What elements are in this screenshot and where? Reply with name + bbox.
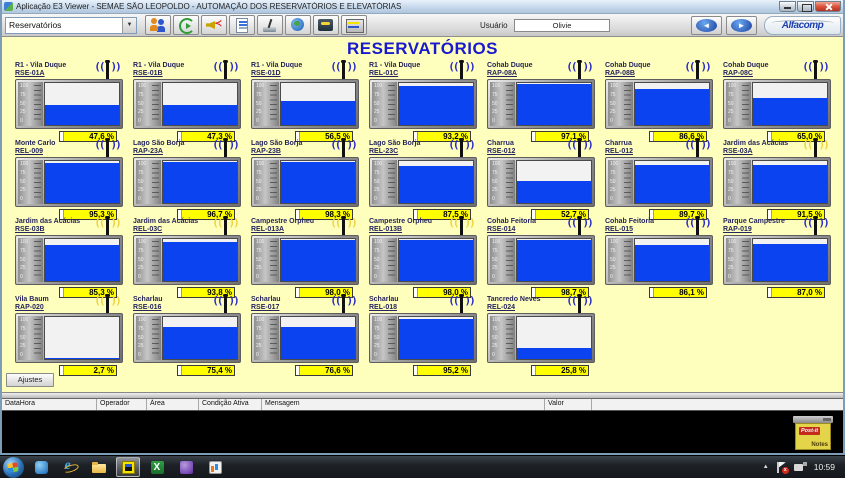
reservoir-widget[interactable]: Lago São Borja REL-23C (( )) 1007550250 … bbox=[369, 140, 479, 218]
antenna-icon: (( )) bbox=[91, 217, 123, 231]
antenna-wave-left: (( bbox=[94, 61, 103, 72]
reservoir-code[interactable]: RAP-08A bbox=[487, 70, 542, 78]
windows-flag-icon bbox=[7, 462, 18, 472]
title-bar: Aplicação E3 Viewer - SEMAE SÃO LEOPOLDO… bbox=[2, 0, 843, 14]
tank-fill bbox=[635, 165, 709, 203]
chevron-down-icon[interactable]: ▼ bbox=[122, 18, 136, 33]
scale-label: 100 bbox=[256, 162, 279, 167]
antenna-wave-right: )) bbox=[819, 217, 828, 228]
scale-label: 0 bbox=[492, 119, 515, 124]
level-gauge: 1007550250 bbox=[251, 157, 359, 207]
antenna-wave-left: (( bbox=[684, 61, 693, 72]
level-gauge: 1007550250 bbox=[251, 313, 359, 363]
reservoir-code[interactable]: RAP-019 bbox=[723, 226, 778, 234]
scale-label: 75 bbox=[610, 93, 633, 98]
taskbar-clock[interactable]: 10:59 bbox=[814, 462, 835, 472]
level-gauge: 1007550250 bbox=[15, 235, 123, 285]
reservoir-code[interactable]: REL-013A bbox=[251, 226, 306, 234]
gauge-scale: 1007550250 bbox=[18, 82, 43, 126]
antenna-icon: (( )) bbox=[327, 61, 359, 75]
reservoir-widget[interactable]: Lago São Borja RAP-23B (( )) 1007550250 … bbox=[251, 140, 361, 218]
scale-label: 75 bbox=[492, 327, 515, 332]
alarm-table-header: DataHoraOperadorÁreaCondição AtivaMensag… bbox=[2, 399, 843, 411]
world-button[interactable] bbox=[285, 15, 311, 35]
reservoir-widget[interactable]: Monte Carlo REL-009 (( )) 1007550250 95,… bbox=[15, 140, 125, 218]
reservoir-widget[interactable]: Cohab Feitoria REL-015 (( )) 1007550250 … bbox=[605, 218, 715, 296]
level-gauge: 1007550250 bbox=[723, 157, 831, 207]
antenna-wave-right: )) bbox=[583, 61, 592, 72]
ajustes-button[interactable]: Ajustes bbox=[6, 373, 54, 387]
back-button[interactable]: ◄ bbox=[691, 16, 722, 35]
close-button[interactable] bbox=[815, 1, 841, 12]
messenger-icon bbox=[34, 460, 49, 475]
level-panel-icon bbox=[346, 18, 362, 32]
antenna-wave-left: (( bbox=[802, 217, 811, 228]
reservoir-widget[interactable]: Lago São Borja RAP-23A (( )) 1007550250 … bbox=[133, 140, 243, 218]
antenna-wave-left: (( bbox=[448, 139, 457, 150]
antenna-wave-right: )) bbox=[465, 61, 474, 72]
phone-panel-icon bbox=[318, 18, 334, 32]
refresh-button[interactable] bbox=[173, 15, 199, 35]
scale-label: 50 bbox=[20, 336, 43, 341]
reservoir-code[interactable]: REL-024 bbox=[487, 304, 542, 312]
page-title: RESERVATÓRIOS bbox=[2, 37, 843, 59]
scale-label: 75 bbox=[20, 93, 43, 98]
level-gauge: 1007550250 bbox=[723, 235, 831, 285]
tank-fill bbox=[281, 327, 355, 359]
tank-fill bbox=[517, 84, 591, 125]
scale-label: 50 bbox=[610, 258, 633, 263]
reservoir-code[interactable]: RSE-014 bbox=[487, 226, 542, 234]
reservoir-widget[interactable]: Scharlau REL-018 (( )) 1007550250 95,2 % bbox=[369, 296, 479, 374]
scale-label: 25 bbox=[20, 188, 43, 193]
gauge-scale: 1007550250 bbox=[490, 316, 515, 360]
scale-label: 75 bbox=[492, 249, 515, 254]
scale-label: 50 bbox=[610, 102, 633, 107]
tank-fill bbox=[281, 240, 355, 281]
scale-label: 50 bbox=[138, 336, 161, 341]
reservoir-widget[interactable]: Charrua RSE-012 (( )) 1007550250 52,7 % bbox=[487, 140, 597, 218]
reservoir-value: 95,2 % bbox=[418, 366, 470, 375]
reservoir-code[interactable]: RSE-01B bbox=[133, 70, 188, 78]
level-gauge: 1007550250 bbox=[15, 79, 123, 129]
reservoir-code[interactable]: REL-23C bbox=[369, 148, 424, 156]
internet-explorer-icon bbox=[63, 460, 78, 475]
reservoir-widget[interactable]: Cohab Feitoria RSE-014 (( )) 1007550250 … bbox=[487, 218, 597, 296]
alarm-column-mensagem: Mensagem bbox=[262, 399, 545, 410]
action-center-flag-icon[interactable]: x bbox=[776, 462, 787, 473]
antenna-wave-left: (( bbox=[448, 61, 457, 72]
scale-label: 0 bbox=[492, 353, 515, 358]
taskbar-app-explorer[interactable] bbox=[87, 457, 111, 477]
reservoir-code[interactable]: RSE-012 bbox=[487, 148, 542, 156]
antenna-wave-right: )) bbox=[229, 217, 238, 228]
reservoir-code[interactable]: RSE-017 bbox=[251, 304, 306, 312]
screen-selector-value: Reservatórios bbox=[6, 20, 122, 30]
folder-icon bbox=[92, 460, 107, 475]
taskbar-app-media[interactable] bbox=[174, 457, 198, 477]
tank bbox=[162, 160, 238, 204]
reservoir-code[interactable]: RSE-03B bbox=[15, 226, 70, 234]
reservoir-code[interactable]: RAP-08C bbox=[723, 70, 778, 78]
antenna-wave-right: )) bbox=[111, 217, 120, 228]
taskbar-app-e3-viewer[interactable] bbox=[116, 457, 140, 477]
postit-dispenser-top bbox=[793, 416, 833, 423]
gauge-scale: 1007550250 bbox=[372, 316, 397, 360]
reservoir-code[interactable]: REL-03C bbox=[133, 226, 188, 234]
reservoir-widget[interactable]: Campestre Orpheu REL-013A (( )) 10075502… bbox=[251, 218, 361, 296]
tank bbox=[516, 316, 592, 360]
gauge-scale: 1007550250 bbox=[372, 160, 397, 204]
scale-label: 100 bbox=[138, 162, 161, 167]
antenna-icon: (( )) bbox=[209, 139, 241, 153]
scale-label: 0 bbox=[374, 119, 397, 124]
tank bbox=[44, 316, 120, 360]
gauge-scale: 1007550250 bbox=[608, 160, 633, 204]
scale-label: 50 bbox=[256, 102, 279, 107]
gauge-scale: 1007550250 bbox=[136, 160, 161, 204]
system-tray: ▲ x 10:59 bbox=[763, 462, 845, 473]
scale-label: 50 bbox=[138, 102, 161, 107]
reservoir-widget[interactable]: Scharlau RSE-017 (( )) 1007550250 76,6 % bbox=[251, 296, 361, 374]
scale-label: 100 bbox=[374, 240, 397, 245]
tank-fill bbox=[45, 163, 119, 203]
start-button[interactable] bbox=[3, 457, 24, 478]
reservoir-widget[interactable]: R1 - Vila Duque RSE-01A (( )) 1007550250… bbox=[15, 62, 125, 140]
reservoir-code[interactable]: RSE-016 bbox=[133, 304, 188, 312]
reservoir-widget[interactable]: Jardim das Acácias RSE-03A (( )) 1007550… bbox=[723, 140, 833, 218]
scale-label: 25 bbox=[20, 266, 43, 271]
antenna-wave-right: )) bbox=[229, 61, 238, 72]
antenna-wave-right: )) bbox=[111, 61, 120, 72]
scale-label: 100 bbox=[256, 240, 279, 245]
tank-fill bbox=[753, 98, 827, 125]
antenna-icon: (( )) bbox=[799, 139, 831, 153]
postit-logo-text: Post-it bbox=[799, 427, 820, 435]
scale-label: 0 bbox=[138, 197, 161, 202]
tank bbox=[398, 160, 474, 204]
scale-label: 0 bbox=[20, 275, 43, 280]
scale-label: 100 bbox=[20, 84, 43, 89]
antenna-icon: (( )) bbox=[563, 217, 595, 231]
tank bbox=[634, 160, 710, 204]
level-value-box: 86,1 % bbox=[649, 287, 707, 298]
minimize-button[interactable] bbox=[779, 1, 796, 12]
scale-label: 25 bbox=[610, 188, 633, 193]
splitter-bar[interactable] bbox=[2, 392, 843, 399]
maximize-button[interactable] bbox=[797, 1, 814, 12]
reservoir-code[interactable]: RAP-23B bbox=[251, 148, 306, 156]
antenna-icon: (( )) bbox=[681, 139, 713, 153]
level-gauge: 1007550250 bbox=[15, 157, 123, 207]
gauge-scale: 1007550250 bbox=[372, 238, 397, 282]
scale-label: 100 bbox=[138, 318, 161, 323]
reservoir-widget[interactable]: R1 - Vila Duque REL-01C (( )) 1007550250… bbox=[369, 62, 479, 140]
level-gauge: 1007550250 bbox=[133, 157, 241, 207]
reservoir-widget[interactable]: R1 - Vila Duque RSE-01B (( )) 1007550250… bbox=[133, 62, 243, 140]
antenna-wave-left: (( bbox=[330, 295, 339, 306]
gauge-scale: 1007550250 bbox=[18, 316, 43, 360]
tank bbox=[162, 82, 238, 126]
level-gauge: 1007550250 bbox=[251, 79, 359, 129]
reservoir-widget[interactable]: Jardim das Acácias REL-03C (( )) 1007550… bbox=[133, 218, 243, 296]
reservoir-code[interactable]: RSE-03A bbox=[723, 148, 778, 156]
antenna-icon: (( )) bbox=[327, 295, 359, 309]
scale-label: 0 bbox=[138, 353, 161, 358]
scale-label: 75 bbox=[728, 249, 751, 254]
scale-label: 100 bbox=[374, 318, 397, 323]
alarm-column--rea: Área bbox=[147, 399, 199, 410]
scale-label: 0 bbox=[492, 197, 515, 202]
tank bbox=[398, 238, 474, 282]
tank bbox=[162, 238, 238, 282]
world-icon bbox=[290, 18, 306, 32]
level-gauge: 1007550250 bbox=[605, 79, 713, 129]
level-value-box: 2,7 % bbox=[59, 365, 117, 376]
reservoir-code[interactable]: REL-009 bbox=[15, 148, 70, 156]
antenna-icon: (( )) bbox=[445, 295, 477, 309]
reservoir-code[interactable]: REL-013B bbox=[369, 226, 424, 234]
reservoir-code[interactable]: RSE-01D bbox=[251, 70, 306, 78]
app-icon-purple bbox=[179, 460, 194, 475]
scale-label: 75 bbox=[374, 327, 397, 332]
antenna-wave-right: )) bbox=[583, 217, 592, 228]
antenna-wave-left: (( bbox=[94, 295, 103, 306]
antenna-wave-left: (( bbox=[566, 61, 575, 72]
forward-button[interactable]: ► bbox=[726, 16, 757, 35]
antenna-wave-right: )) bbox=[819, 61, 828, 72]
scale-label: 75 bbox=[492, 93, 515, 98]
gauge-scale: 1007550250 bbox=[726, 82, 751, 126]
scale-label: 0 bbox=[20, 353, 43, 358]
scale-label: 25 bbox=[492, 344, 515, 349]
scale-label: 75 bbox=[256, 249, 279, 254]
antenna-icon: (( )) bbox=[91, 139, 123, 153]
app-icon bbox=[4, 2, 13, 11]
tank bbox=[634, 82, 710, 126]
reservoir-widget[interactable]: Charrua REL-012 (( )) 1007550250 89,7 % bbox=[605, 140, 715, 218]
antenna-wave-right: )) bbox=[465, 217, 474, 228]
reservoir-grid: R1 - Vila Duque RSE-01A (( )) 1007550250… bbox=[15, 62, 843, 374]
reservoir-widget[interactable]: Tancredo Neves REL-024 (( )) 1007550250 … bbox=[487, 296, 597, 374]
scale-label: 25 bbox=[20, 110, 43, 115]
scale-label: 50 bbox=[374, 258, 397, 263]
antenna-icon: (( )) bbox=[799, 217, 831, 231]
level-value-box: 75,4 % bbox=[177, 365, 235, 376]
reservoir-code[interactable]: RAP-020 bbox=[15, 304, 70, 312]
scale-label: 25 bbox=[492, 110, 515, 115]
antenna-wave-right: )) bbox=[465, 139, 474, 150]
scale-label: 75 bbox=[20, 327, 43, 332]
antenna-icon: (( )) bbox=[327, 217, 359, 231]
reservoir-code[interactable]: REL-018 bbox=[369, 304, 424, 312]
tank-fill bbox=[635, 245, 709, 281]
antenna-wave-left: (( bbox=[448, 217, 457, 228]
scale-label: 100 bbox=[20, 318, 43, 323]
scale-label: 75 bbox=[374, 93, 397, 98]
antenna-icon: (( )) bbox=[209, 217, 241, 231]
scale-label: 75 bbox=[728, 93, 751, 98]
reservoir-code[interactable]: REL-012 bbox=[605, 148, 660, 156]
scale-label: 100 bbox=[138, 84, 161, 89]
scale-label: 100 bbox=[20, 240, 43, 245]
level-gauge: 1007550250 bbox=[605, 235, 713, 285]
e3-viewer-icon bbox=[121, 460, 136, 475]
user-label: Usuário bbox=[480, 21, 508, 30]
tank bbox=[398, 316, 474, 360]
screen-selector[interactable]: Reservatórios ▼ bbox=[5, 17, 137, 34]
gauge-scale: 1007550250 bbox=[254, 160, 279, 204]
antenna-icon: (( )) bbox=[209, 295, 241, 309]
scale-label: 50 bbox=[20, 102, 43, 107]
scale-label: 100 bbox=[728, 240, 751, 245]
scale-label: 0 bbox=[728, 197, 751, 202]
scale-label: 25 bbox=[138, 266, 161, 271]
scale-label: 50 bbox=[492, 102, 515, 107]
level-gauge: 1007550250 bbox=[369, 235, 477, 285]
level-gauge: 1007550250 bbox=[369, 157, 477, 207]
reservoir-code[interactable]: RAP-08B bbox=[605, 70, 660, 78]
antenna-wave-right: )) bbox=[701, 61, 710, 72]
scale-label: 50 bbox=[374, 180, 397, 185]
reservoir-code[interactable]: REL-01C bbox=[369, 70, 424, 78]
brand-text: Alfacomp bbox=[782, 20, 824, 31]
reservoir-value: 2,7 % bbox=[64, 366, 116, 375]
scale-label: 25 bbox=[138, 344, 161, 349]
user-field[interactable]: Olivie bbox=[514, 19, 610, 32]
scale-label: 0 bbox=[728, 275, 751, 280]
reservoir-value: 25,8 % bbox=[536, 366, 588, 375]
tank-fill bbox=[753, 244, 827, 281]
gauge-scale: 1007550250 bbox=[18, 160, 43, 204]
antenna-wave-right: )) bbox=[347, 61, 356, 72]
reservoir-code[interactable]: RAP-23A bbox=[133, 148, 188, 156]
phone-panel-button[interactable] bbox=[313, 15, 339, 35]
reservoir-widget[interactable]: Cohab Duque RAP-08B (( )) 1007550250 86,… bbox=[605, 62, 715, 140]
scale-label: 25 bbox=[610, 110, 633, 115]
scale-label: 75 bbox=[20, 171, 43, 176]
level-gauge: 1007550250 bbox=[133, 313, 241, 363]
alarm-speaker-button[interactable] bbox=[201, 15, 227, 35]
scale-label: 0 bbox=[138, 119, 161, 124]
reservoir-widget[interactable]: R1 - Vila Duque RSE-01D (( )) 1007550250… bbox=[251, 62, 361, 140]
postit-notes-icon[interactable]: Post-it Notes bbox=[791, 416, 835, 452]
alfacomp-logo: Alfacomp bbox=[764, 16, 841, 35]
report-button[interactable] bbox=[229, 15, 255, 35]
tank-fill bbox=[635, 89, 709, 125]
scale-label: 50 bbox=[256, 180, 279, 185]
tank-fill bbox=[517, 348, 591, 359]
level-panel-button[interactable] bbox=[341, 15, 367, 35]
gauge-scale: 1007550250 bbox=[726, 238, 751, 282]
tank bbox=[280, 238, 356, 282]
hidden-icons-chevron[interactable]: ▲ bbox=[763, 464, 769, 470]
network-icon[interactable] bbox=[794, 462, 807, 473]
alarm-column-valor: Valor bbox=[545, 399, 592, 410]
tank bbox=[634, 238, 710, 282]
reservoir-value: 76,6 % bbox=[300, 366, 352, 375]
antenna-wave-right: )) bbox=[819, 139, 828, 150]
level-gauge: 1007550250 bbox=[133, 235, 241, 285]
antenna-wave-right: )) bbox=[111, 139, 120, 150]
antenna-icon: (( )) bbox=[563, 61, 595, 75]
toolbar: Reservatórios ▼ Usuário Olivie ◄ ► Alfac… bbox=[2, 14, 843, 37]
scale-label: 100 bbox=[492, 318, 515, 323]
reservoir-value: 75,4 % bbox=[182, 366, 234, 375]
tank bbox=[280, 82, 356, 126]
antenna-icon: (( )) bbox=[563, 295, 595, 309]
reservoir-code[interactable]: REL-015 bbox=[605, 226, 660, 234]
scale-label: 100 bbox=[20, 162, 43, 167]
reservoir-widget[interactable]: Cohab Duque RAP-08A (( )) 1007550250 97,… bbox=[487, 62, 597, 140]
tank-fill bbox=[399, 240, 473, 281]
antenna-wave-right: )) bbox=[347, 295, 356, 306]
scale-label: 0 bbox=[20, 119, 43, 124]
alarm-table-body: Post-it Notes bbox=[2, 411, 843, 453]
radio-antenna-button[interactable] bbox=[257, 15, 283, 35]
level-value-box: 87,0 % bbox=[767, 287, 825, 298]
screen: Aplicação E3 Viewer - SEMAE SÃO LEOPOLDO… bbox=[0, 0, 845, 478]
antenna-icon: (( )) bbox=[209, 61, 241, 75]
radio-antenna-icon bbox=[262, 18, 278, 32]
gauge-scale: 1007550250 bbox=[490, 82, 515, 126]
users-button[interactable] bbox=[145, 15, 171, 35]
tank-fill bbox=[281, 162, 355, 203]
scale-label: 75 bbox=[20, 249, 43, 254]
postit-pad: Post-it Notes bbox=[795, 423, 831, 450]
scale-label: 75 bbox=[138, 249, 161, 254]
scale-label: 0 bbox=[610, 275, 633, 280]
level-gauge: 1007550250 bbox=[723, 79, 831, 129]
reservoir-widget[interactable]: Vila Baum RAP-020 (( )) 1007550250 2,7 % bbox=[15, 296, 125, 374]
taskbar-app-internet-explorer[interactable] bbox=[58, 457, 82, 477]
reservoir-widget[interactable]: Campestre Orpheu REL-013B (( )) 10075502… bbox=[369, 218, 479, 296]
antenna-wave-left: (( bbox=[684, 217, 693, 228]
antenna-wave-right: )) bbox=[465, 295, 474, 306]
antenna-icon: (( )) bbox=[445, 61, 477, 75]
scale-label: 25 bbox=[728, 110, 751, 115]
taskbar-app-messenger[interactable] bbox=[29, 457, 53, 477]
gauge-scale: 1007550250 bbox=[136, 82, 161, 126]
reservoir-code[interactable]: RSE-01A bbox=[15, 70, 70, 78]
scale-label: 75 bbox=[138, 171, 161, 176]
scale-label: 75 bbox=[492, 171, 515, 176]
antenna-wave-left: (( bbox=[566, 295, 575, 306]
alert-badge: x bbox=[782, 467, 789, 474]
scale-label: 50 bbox=[728, 180, 751, 185]
antenna-wave-left: (( bbox=[566, 217, 575, 228]
reservoir-widget[interactable]: Jardim das Acácias RSE-03B (( )) 1007550… bbox=[15, 218, 125, 296]
reservoir-widget[interactable]: Scharlau RSE-016 (( )) 1007550250 75,4 % bbox=[133, 296, 243, 374]
scale-label: 25 bbox=[610, 266, 633, 271]
reservoir-widget[interactable]: Parque Campestre RAP-019 (( )) 100755025… bbox=[723, 218, 833, 296]
reservoir-widget[interactable]: Cohab Duque RAP-08C (( )) 1007550250 65,… bbox=[723, 62, 833, 140]
scale-label: 25 bbox=[492, 188, 515, 193]
taskbar-app-chart[interactable] bbox=[203, 457, 227, 477]
level-gauge: 1007550250 bbox=[133, 79, 241, 129]
chart-app-icon bbox=[208, 460, 223, 475]
scale-label: 25 bbox=[728, 188, 751, 193]
level-value-box: 95,2 % bbox=[413, 365, 471, 376]
scale-label: 25 bbox=[374, 188, 397, 193]
scale-label: 100 bbox=[492, 240, 515, 245]
gauge-scale: 1007550250 bbox=[490, 160, 515, 204]
scale-label: 100 bbox=[138, 240, 161, 245]
antenna-wave-right: )) bbox=[583, 295, 592, 306]
reservoir-value: 87,0 % bbox=[772, 288, 824, 297]
taskbar-app-excel[interactable] bbox=[145, 457, 169, 477]
level-gauge: 1007550250 bbox=[487, 235, 595, 285]
